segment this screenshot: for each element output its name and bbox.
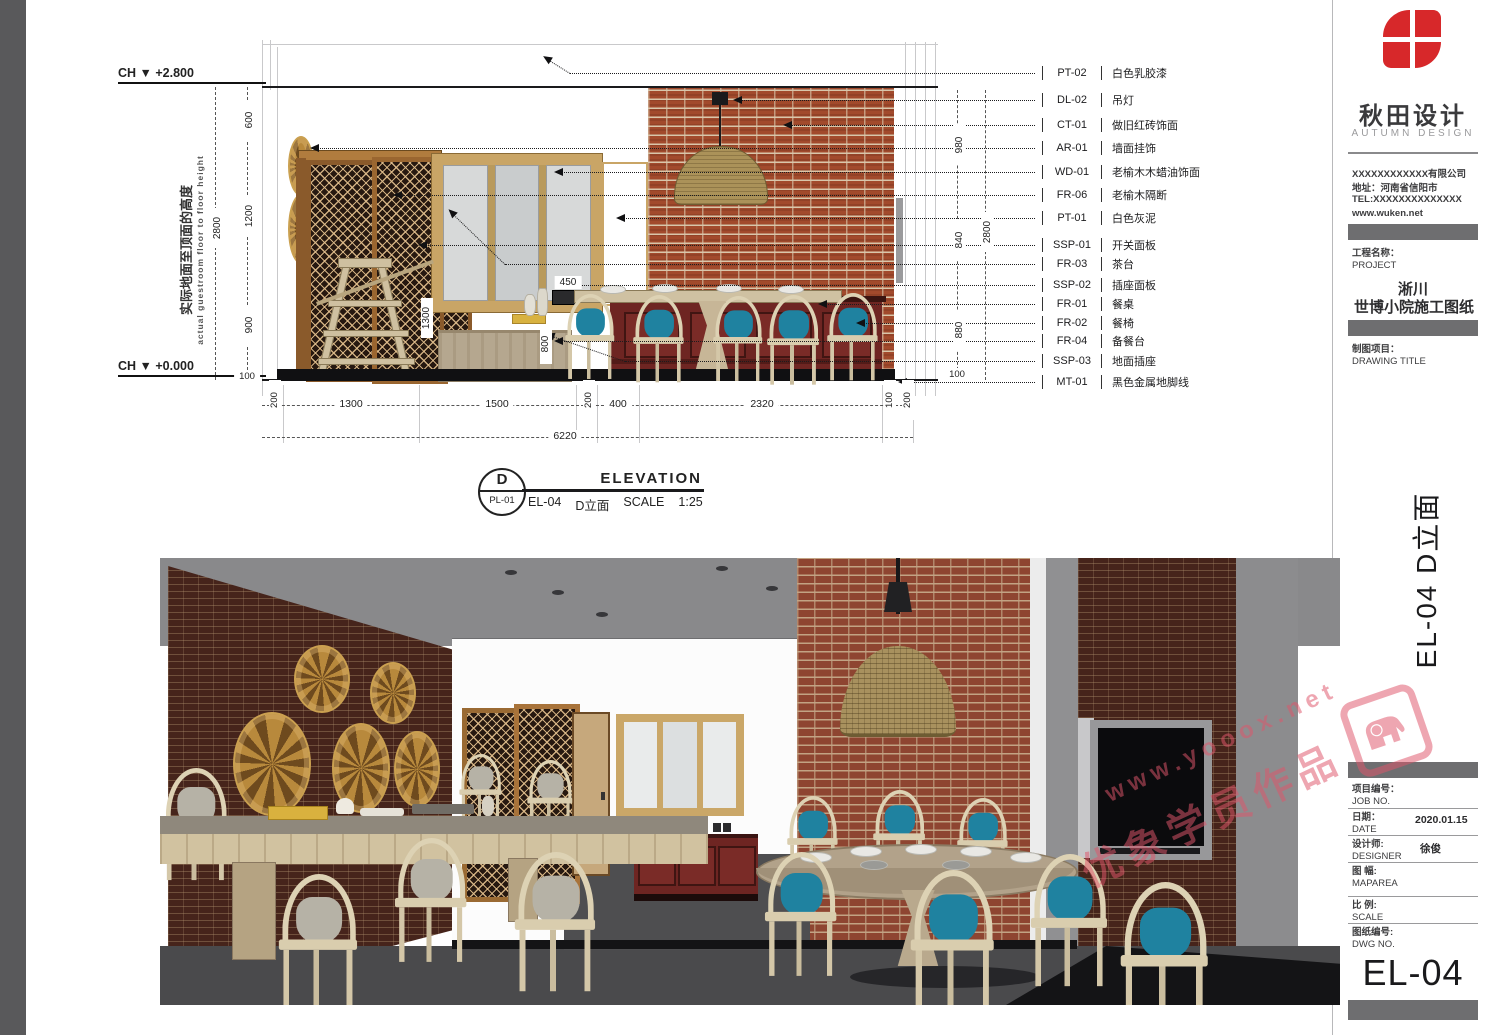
tea-table-chair [280,874,354,1005]
divider [1348,808,1478,809]
field-job-en: JOB NO. [1352,796,1390,808]
ladder-rung [328,300,402,307]
dining-chair [634,295,681,382]
callout-label: 开关面板 [1112,237,1156,253]
dish [942,860,970,870]
sheet-left-bar [0,0,26,1035]
company-tel: TEL:XXXXXXXXXXXXXX [1352,194,1462,205]
callout-label: 餐椅 [1112,315,1134,331]
callout-label: 吊灯 [1112,92,1134,108]
elephant-shape [1363,713,1407,750]
leader-arrow [393,191,402,199]
extension-line [262,40,263,396]
view-name: D立面 [575,495,609,514]
socket-panel [723,823,731,832]
chair-legs [283,950,352,1005]
chair-cushion [469,766,494,791]
wall-edge-strip [896,198,903,283]
callout-label: 黑色金属地脚线 [1112,374,1189,390]
chair-cushion [533,876,580,923]
callout-label: 老榆木隔断 [1112,187,1167,203]
drawing-title-label-cn: 制图项目： [1352,344,1400,356]
dim-label: 100 [234,370,260,383]
teapot [336,798,354,814]
callout-label: 备餐台 [1112,333,1145,349]
dining-chair [1032,854,1104,986]
dim-label: 100 [944,368,970,381]
field-date-value: 2020.01.15 [1415,814,1468,826]
tea-table-leg [232,862,276,960]
window-pane [663,722,696,808]
callout-row: AR-01墙面挂饰 [1042,140,1156,156]
section-bar [1348,1000,1478,1020]
view-title-heading: ELEVATION [560,470,702,487]
callout-leader-line [505,264,1035,265]
callout-code: WD-01 [1042,165,1102,179]
drawing-title-label-en: DRAWING TITLE [1352,356,1426,368]
callout-leader-line [395,195,1035,196]
chair-cushion [644,310,674,340]
callout-code: PT-01 [1042,211,1102,225]
far-gray-wall [1236,558,1298,1005]
section-bar [1348,762,1478,778]
divider [1348,896,1478,897]
callout-label: 墙面挂饰 [1112,140,1156,156]
extension-line [935,42,936,396]
leader-arrow [554,337,563,345]
downlight [596,612,608,617]
company-logo [1383,10,1441,68]
book-stack [268,806,328,820]
ladder-rung [323,330,409,337]
woven-wall-plate [394,731,440,807]
lattice-post [296,158,306,372]
callout-leader-line [572,285,1035,286]
dim-label: 200 [269,380,281,420]
callout-row: WD-01老榆木木蜡油饰面 [1042,164,1200,180]
bubble-bottom-text: PL-01 [480,492,524,510]
chair-cushion [781,873,823,915]
dim-label: 2800 [982,212,994,252]
chair-seat [279,940,357,950]
field-designer-value: 徐俊 [1420,841,1441,856]
callout-code: AR-01 [1042,141,1102,155]
vase [524,294,536,316]
dim-label: 1300 [421,298,433,338]
woven-wall-plate [370,662,416,724]
chair-legs [1035,928,1102,986]
callout-label: 白色灰泥 [1112,210,1156,226]
dish [860,860,888,870]
leader-arrow [783,121,792,129]
chair-legs [716,344,759,381]
chair-legs [520,930,591,991]
dining-chair [912,870,990,1005]
callout-label: 插座面板 [1112,277,1156,293]
dim-label: 2800 [212,208,224,248]
dining-chair [1122,882,1204,1005]
extension-line [419,385,420,443]
logo-quadrant [1383,10,1410,37]
chair-seat [787,838,837,845]
sideboard-shadow [634,894,758,901]
pendant-canopy [712,92,728,105]
field-dwgno-en: DWG NO. [1352,939,1395,951]
view-title-sub: EL-04 D立面 SCALE 1:25 [528,495,718,514]
leader-arrow [856,319,865,327]
dim-label: 2320 [745,398,778,411]
logo-name-cn: 秋田设计 [1348,96,1478,131]
extension-line [915,42,916,396]
divider [1348,835,1478,836]
chair-legs [636,344,680,382]
field-dwgno-cn: 图纸编号: [1352,927,1393,939]
chair-cushion [296,897,342,943]
divider [1348,152,1478,154]
company-web: www.wuken.net [1352,208,1423,219]
divider [1348,862,1478,863]
callout-row: SSP-02插座面板 [1042,277,1156,293]
callout-code: SSP-03 [1042,354,1102,368]
window-pane [624,722,657,808]
door-handle [601,792,605,800]
callout-code: FR-04 [1042,334,1102,348]
dining-chair [828,293,875,380]
dim-label: 800 [540,324,552,364]
dim-label: 840 [954,220,966,260]
callout-leader-line [858,323,1035,324]
callout-leader-line [820,304,1035,305]
sheet-side-title: EL-04 D立面 [1404,430,1450,730]
render-view [160,558,1340,1005]
tea-table-chair [516,852,592,991]
chair-legs [916,951,989,1005]
leader-arrow [733,96,742,104]
window-pane [443,165,488,301]
dim-label: 200 [902,380,914,420]
leader-arrow [541,53,553,65]
dim-line [262,437,913,438]
callout-row: PT-01白色灰泥 [1042,210,1156,226]
chair-cushion [1048,876,1093,921]
callout-code: CT-01 [1042,118,1102,132]
chair-seat [515,919,595,930]
project-name-line2: 世博小院施工图纸 [1340,296,1488,317]
callout-code: FR-02 [1042,316,1102,330]
leader-arrow [310,144,319,152]
callout-label: 茶台 [1112,256,1134,272]
switch-panel [713,823,721,832]
drawing-sheet: { "logo": {"cn": "秋田设计", "en": "AUTUMN D… [0,0,1500,1035]
chair-cushion [968,813,998,843]
leader-arrow [818,300,827,308]
dim-label: 1300 [334,398,367,411]
callout-label: 白色乳胶漆 [1112,65,1167,81]
extension-line [882,385,883,443]
tv-screen [1090,720,1212,860]
dish [905,844,937,855]
callout-row: SSP-01开关面板 [1042,237,1156,253]
dining-chair [714,296,760,381]
chair-seat [1121,955,1208,967]
sheet-number: EL-04 [1348,952,1478,994]
callout-leader-line [618,218,1035,219]
callout-code: MT-01 [1042,375,1102,389]
extension-line [925,42,926,396]
chair-seat [765,912,836,921]
callout-row: FR-04备餐台 [1042,333,1145,349]
section-bar [1348,224,1478,240]
project-label-cn: 工程名称： [1352,248,1400,260]
height-note-cn: 实际地面至顶面的高度 [176,130,195,370]
callout-leader-line [570,73,1035,74]
callout-row: CT-01做旧红砖饰面 [1042,117,1178,133]
extension-line [597,385,598,443]
callout-code: PT-02 [1042,66,1102,80]
chair-cushion [724,310,753,339]
callout-code: FR-06 [1042,188,1102,202]
callout-leader-diagonal [544,57,570,74]
dim-label: 1200 [244,196,256,236]
callout-row: FR-02餐椅 [1042,315,1134,331]
bubble-top-text: D [480,470,524,492]
tv-soundbar [1100,848,1200,854]
chair-legs [769,921,832,976]
field-maparea-en: MAPAREA [1352,878,1398,890]
pendant-cord [719,105,721,148]
chair-seat [1031,918,1107,928]
window-pane [703,722,736,808]
view-title-bubble: D PL-01 [478,468,526,516]
logo-quadrant [1415,10,1442,37]
downlight [505,570,517,575]
tv-panel [1098,728,1204,846]
ladder-stool [306,258,436,378]
callout-row: SSP-03地面插座 [1042,353,1156,369]
extension-line [270,40,271,90]
callout-label: 餐桌 [1112,296,1134,312]
view-scale-label: SCALE [623,495,664,514]
field-job-cn: 项目编号： [1352,784,1400,796]
bottle [482,796,494,816]
leader-arrow [554,168,563,176]
chair-cushion [1140,908,1191,959]
callout-label: 做旧红砖饰面 [1112,117,1178,133]
chair-seat [873,833,925,840]
dish [600,285,626,294]
downlight [552,590,564,595]
dining-chair [566,294,612,379]
callout-row: FR-01餐桌 [1042,296,1134,312]
chair-legs [399,907,462,962]
extension-line [283,385,284,443]
chair-cushion [537,773,563,799]
dish [960,846,992,857]
chair-cushion [929,894,978,943]
extension-line [262,44,938,45]
leader-arrow [616,214,625,222]
dim-label: 980 [954,125,966,165]
window [616,714,744,816]
callout-label: 老榆木木蜡油饰面 [1112,164,1200,180]
chair-cushion [798,811,828,841]
leader-arrow [418,241,427,249]
company-address: 地址：河南省信阳市 [1352,180,1438,194]
dim-label: 100 [884,380,896,420]
field-date-cn: 日期： [1352,812,1381,824]
callout-label: 地面插座 [1112,353,1156,369]
chair-legs [1126,966,1203,1005]
vase [537,288,548,316]
dish [778,285,804,294]
woven-wall-plate [294,645,350,713]
callout-leader-line [420,245,1035,246]
callout-leader-line [312,148,1035,149]
chair-legs [770,345,816,385]
ladder-seat [338,258,392,268]
chair-cushion [576,308,605,337]
chair-seat [911,940,994,951]
callout-row: PT-02白色乳胶漆 [1042,65,1167,81]
dim-label: 6220 [548,430,581,443]
dim-label: 1500 [480,398,513,411]
dim-label: 450 [555,276,582,289]
field-scale-cn: 比 例: [1352,900,1377,912]
downlight [766,586,778,591]
woven-wall-plate [233,712,311,816]
callout-leader-line [900,382,1035,383]
ladder-rung [318,358,415,365]
callout-leader-line [785,125,1035,126]
callout-code: FR-01 [1042,297,1102,311]
dim-label: 600 [244,100,256,140]
chair-legs [568,342,611,379]
sideboard-panel [718,846,756,886]
height-note-en: actual guestroom floor to floor height [195,130,205,370]
logo-name-en: AUTUMN DESIGN [1348,128,1478,139]
chair-cushion [779,310,809,340]
callout-code: FR-03 [1042,257,1102,271]
logo-quadrant [1383,42,1410,69]
callout-row: DL-02吊灯 [1042,92,1134,108]
callout-leader-line [625,361,1035,362]
level-marker-top: CH ▼ +2.800 [118,66,266,84]
callout-code: SSP-02 [1042,278,1102,292]
callout-code: DL-02 [1042,93,1102,107]
project-label-en: PROJECT [1352,260,1396,272]
logo-quadrant [1415,42,1442,69]
tea-cups [360,808,404,816]
window-pane [495,165,540,301]
downlight [716,566,728,571]
chair-cushion [885,805,915,835]
tea-table-surface [160,816,708,836]
callout-row: FR-06老榆木隔断 [1042,187,1167,203]
tea-table-chair [396,838,463,962]
callout-row: MT-01黑色金属地脚线 [1042,374,1189,390]
callout-leader-line [735,100,1035,101]
view-title-rule [522,489,704,492]
divider [1348,923,1478,924]
height-note: 实际地面至顶面的高度 actual guestroom floor to flo… [176,130,210,370]
dim-label: 400 [604,398,632,411]
dim-label: 200 [583,380,595,420]
dining-chair [768,295,817,385]
dining-chair [766,852,833,976]
extension-line [905,42,906,396]
section-bar [1348,320,1478,336]
field-maparea-cn: 图 幅: [1352,866,1377,878]
company-name: XXXXXXXXXXXX有限公司 [1352,166,1466,180]
extension-line [639,385,640,443]
chair-seat [395,898,466,907]
dim-label: 900 [244,305,256,345]
extension-line [277,47,278,372]
dish [850,846,882,857]
view-code: EL-04 [528,495,561,514]
chair-cushion [411,859,453,901]
callout-code: SSP-01 [1042,238,1102,252]
callout-row: FR-03茶台 [1042,256,1134,272]
view-scale-value: 1:25 [678,495,702,514]
tea-tray [412,804,474,814]
elephant-ear [1370,723,1384,737]
field-designer-cn: 设计师: [1352,839,1384,851]
dim-label: 880 [954,310,966,350]
callout-leader-line [556,172,1035,173]
